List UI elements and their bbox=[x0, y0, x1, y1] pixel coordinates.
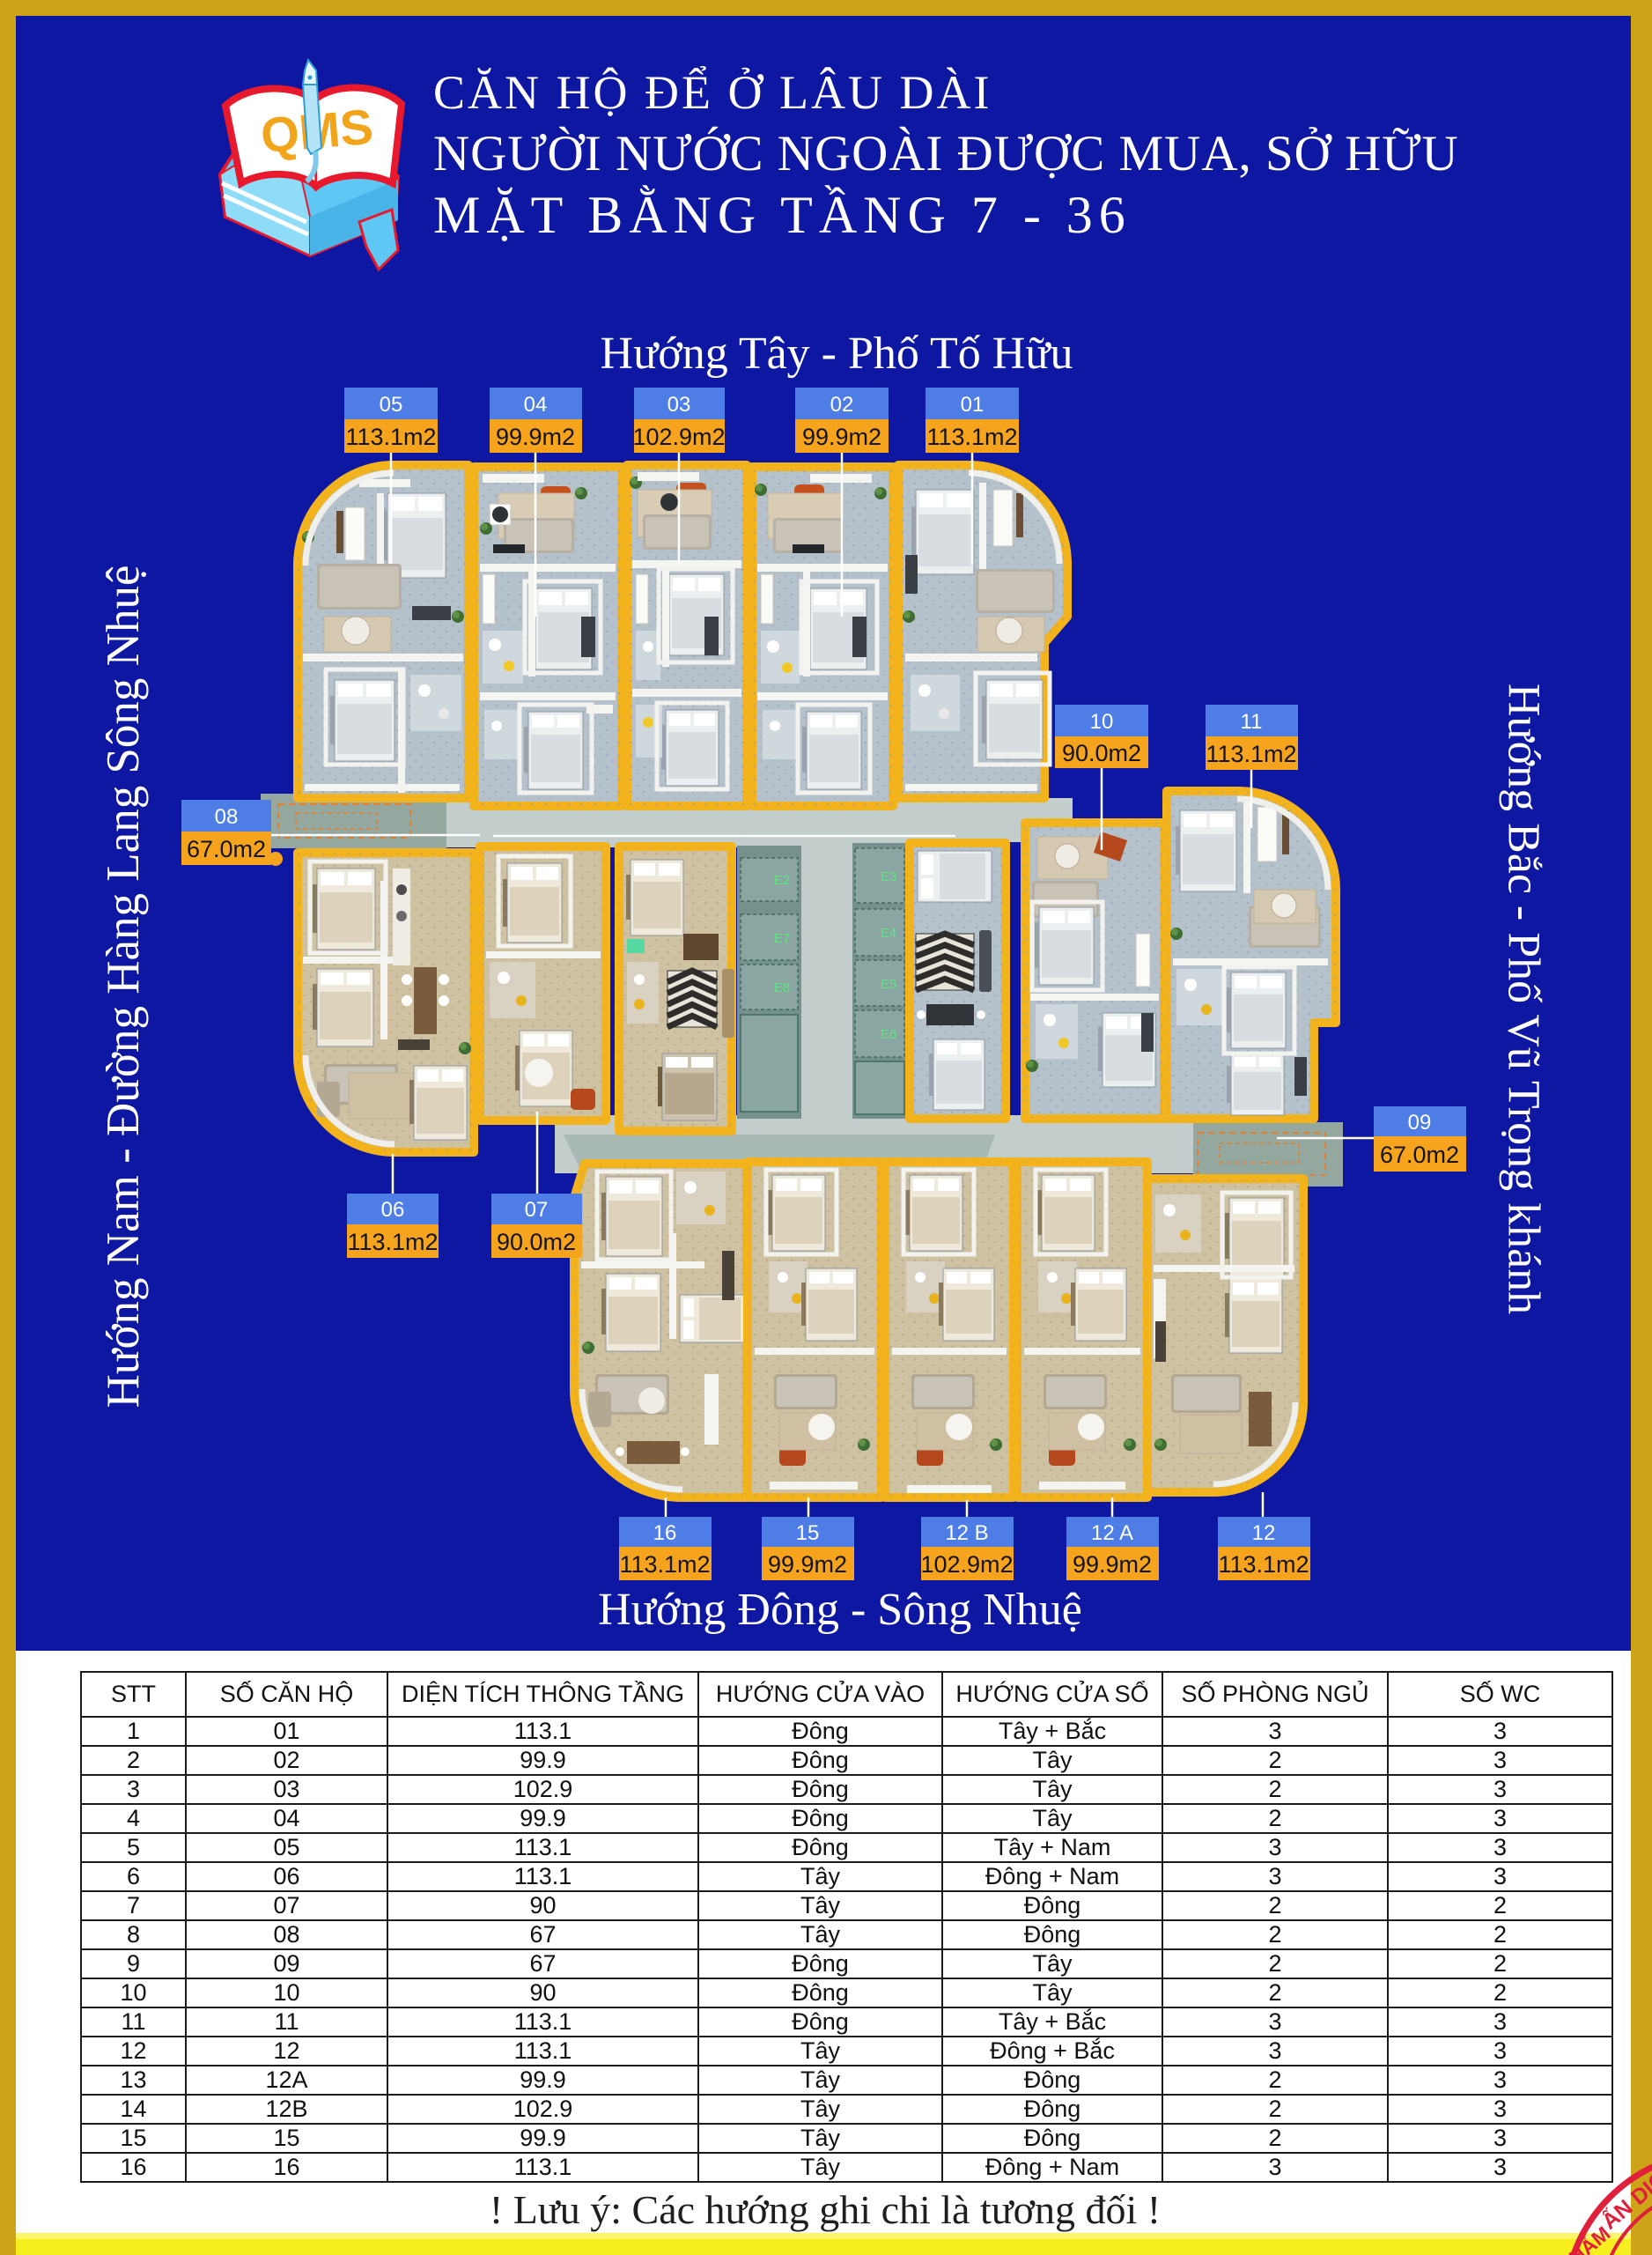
svg-text:06: 06 bbox=[381, 1198, 405, 1222]
svg-text:02: 02 bbox=[830, 393, 854, 417]
svg-text:12 B: 12 B bbox=[945, 1521, 988, 1545]
svg-text:67.0m2: 67.0m2 bbox=[1380, 1142, 1459, 1168]
svg-text:67.0m2: 67.0m2 bbox=[187, 836, 266, 862]
svg-text:102.9m2: 102.9m2 bbox=[920, 1551, 1013, 1578]
svg-text:113.1m2: 113.1m2 bbox=[1206, 741, 1296, 767]
svg-text:90.0m2: 90.0m2 bbox=[497, 1229, 576, 1255]
svg-text:113.1m2: 113.1m2 bbox=[619, 1551, 710, 1578]
svg-text:102.9m2: 102.9m2 bbox=[632, 424, 725, 450]
svg-text:E2: E2 bbox=[774, 873, 790, 888]
svg-text:113.1m2: 113.1m2 bbox=[347, 1229, 438, 1255]
svg-text:E3: E3 bbox=[881, 869, 896, 884]
svg-text:09: 09 bbox=[1408, 1111, 1432, 1135]
svg-text:E4: E4 bbox=[881, 926, 896, 941]
svg-text:E5: E5 bbox=[881, 977, 896, 992]
svg-text:E6: E6 bbox=[881, 1027, 896, 1042]
svg-text:113.1m2: 113.1m2 bbox=[1218, 1551, 1309, 1578]
svg-text:12 A: 12 A bbox=[1091, 1521, 1133, 1545]
svg-text:04: 04 bbox=[524, 393, 548, 417]
svg-text:99.9m2: 99.9m2 bbox=[1073, 1551, 1152, 1578]
svg-text:99.9m2: 99.9m2 bbox=[802, 424, 881, 450]
svg-text:99.9m2: 99.9m2 bbox=[768, 1551, 847, 1578]
svg-text:08: 08 bbox=[215, 805, 239, 829]
svg-text:10: 10 bbox=[1090, 710, 1114, 734]
svg-text:16: 16 bbox=[653, 1521, 677, 1545]
svg-text:113.1m2: 113.1m2 bbox=[926, 424, 1017, 450]
svg-text:99.9m2: 99.9m2 bbox=[496, 424, 575, 450]
svg-text:11: 11 bbox=[1241, 710, 1263, 734]
svg-text:113.1m2: 113.1m2 bbox=[345, 424, 436, 450]
svg-text:01: 01 bbox=[961, 393, 985, 417]
svg-text:07: 07 bbox=[525, 1198, 549, 1222]
svg-text:15: 15 bbox=[796, 1521, 820, 1545]
svg-text:E8: E8 bbox=[774, 980, 790, 995]
svg-text:E7: E7 bbox=[774, 931, 790, 946]
svg-text:90.0m2: 90.0m2 bbox=[1062, 740, 1141, 766]
svg-text:12: 12 bbox=[1252, 1521, 1276, 1545]
svg-text:03: 03 bbox=[667, 393, 691, 417]
svg-text:05: 05 bbox=[380, 393, 403, 417]
